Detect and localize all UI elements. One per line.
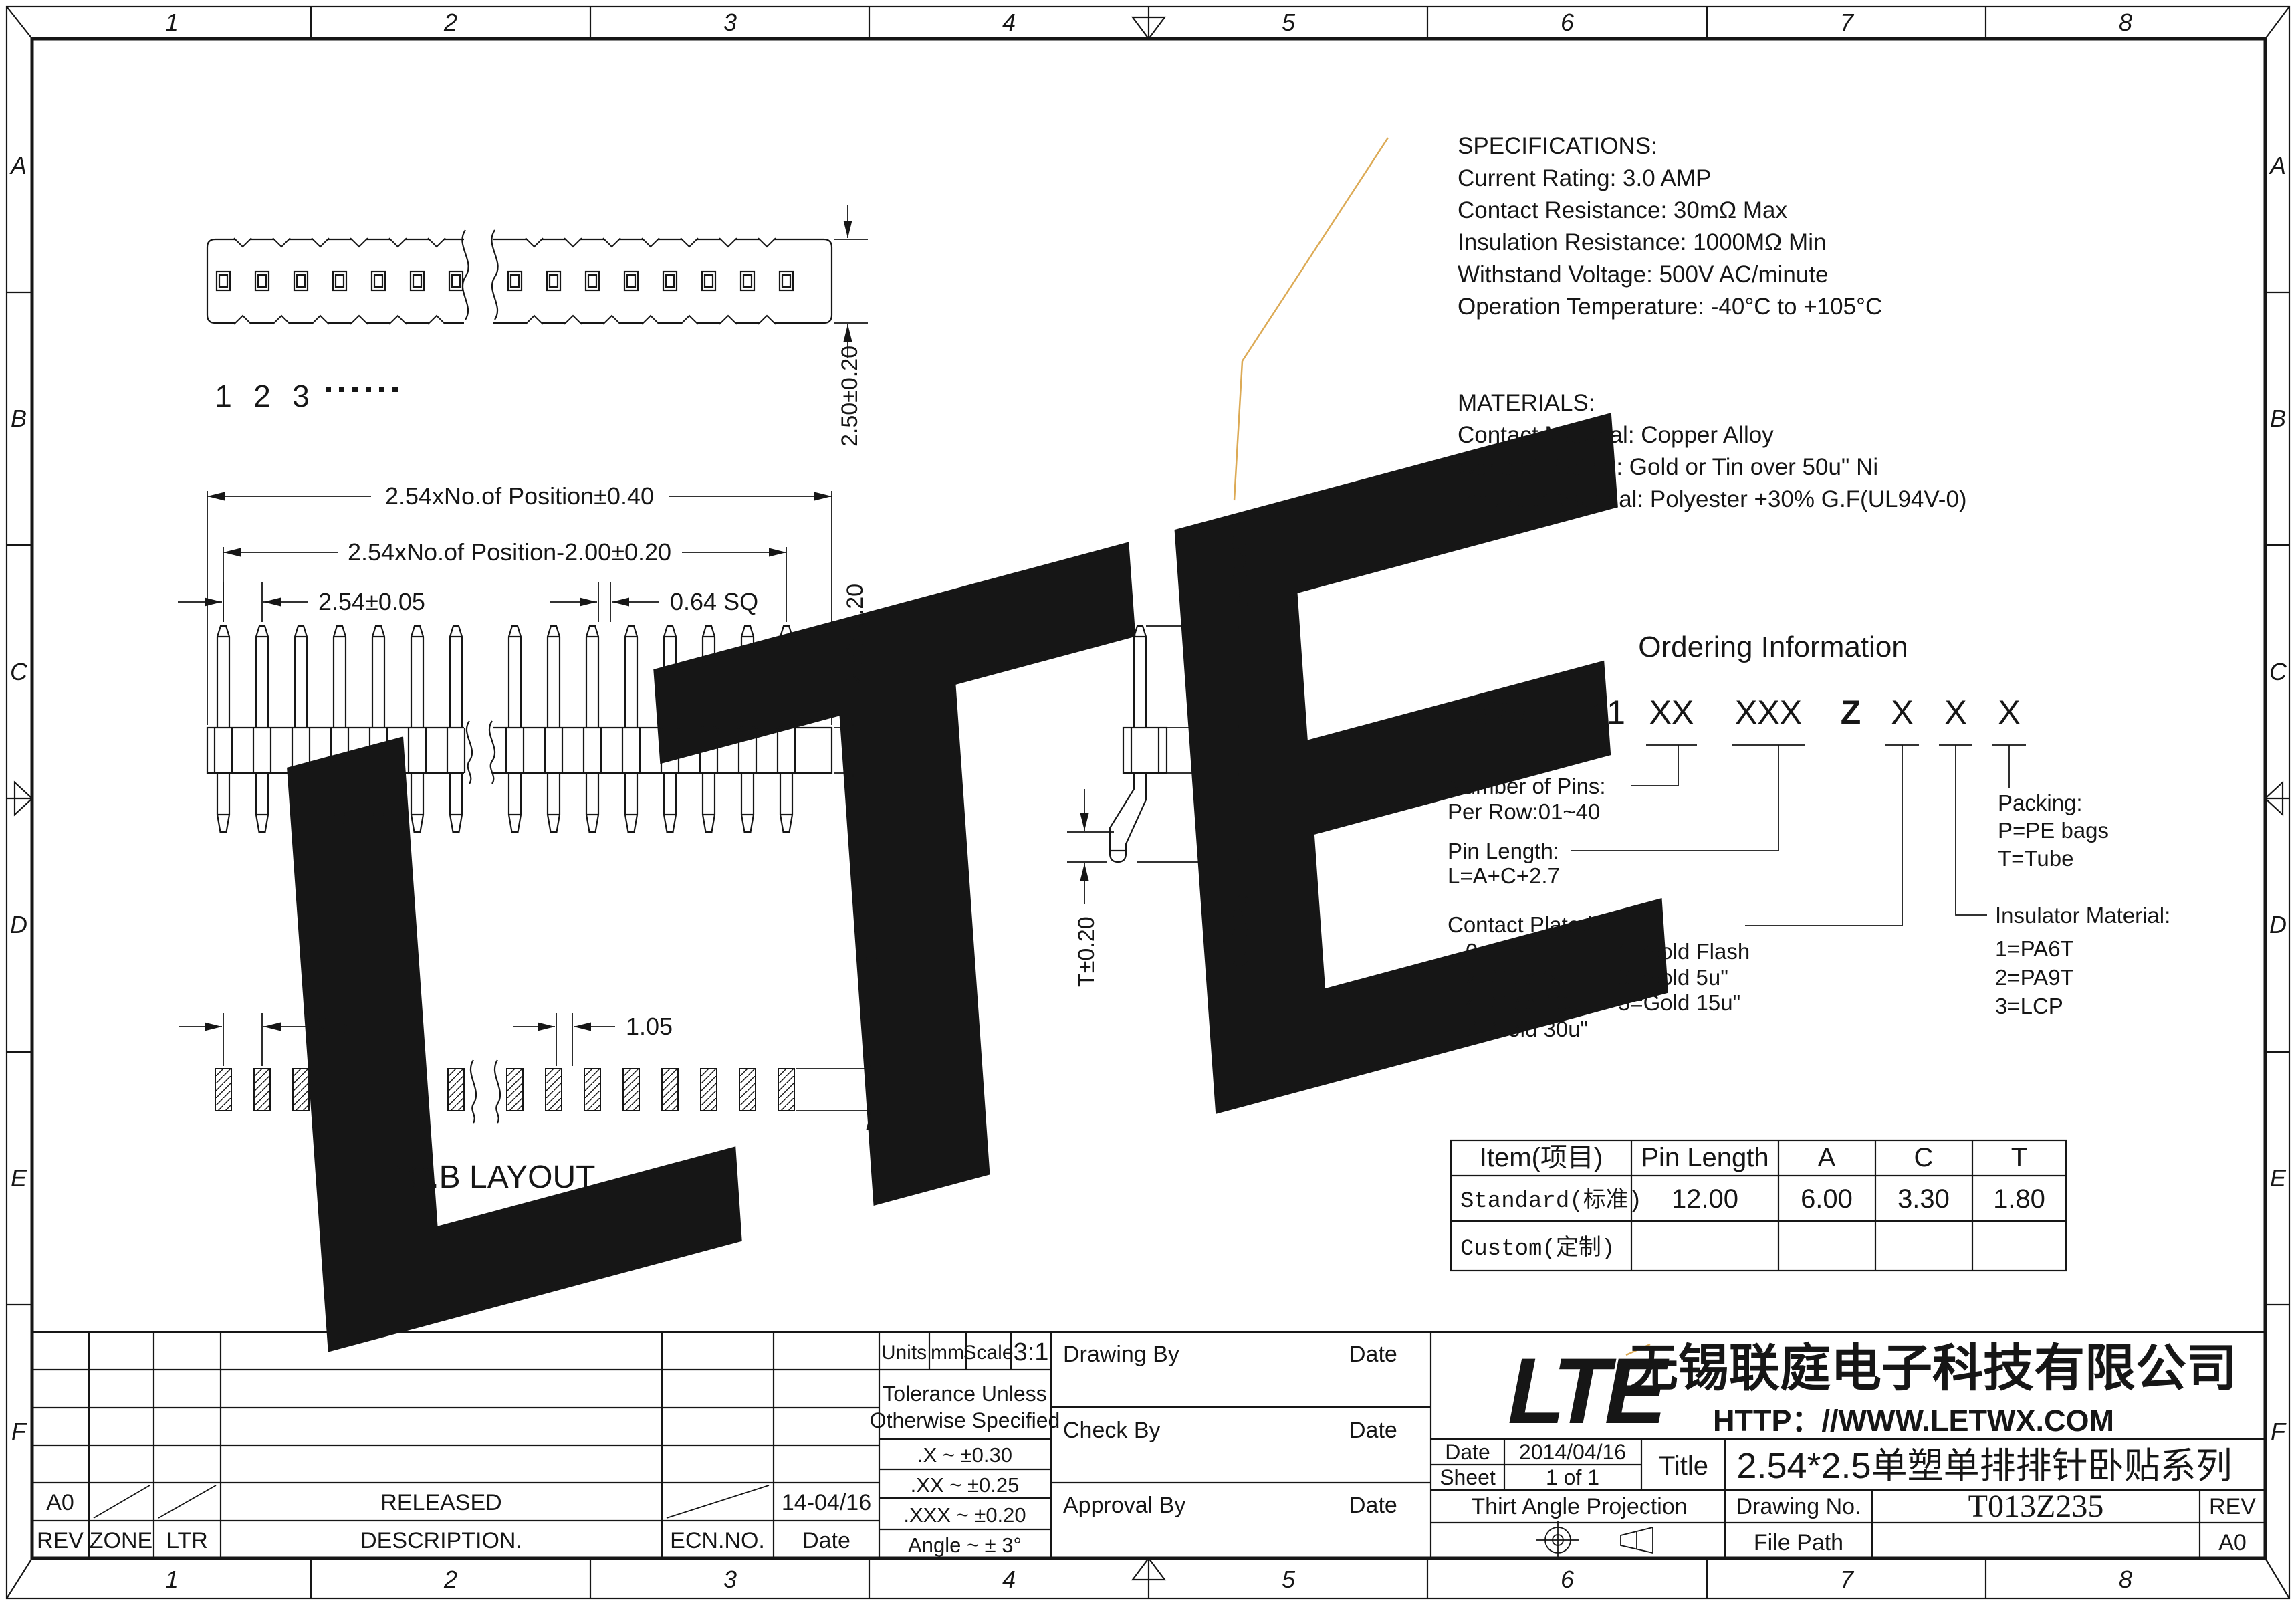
svg-text:B: B	[2270, 405, 2286, 432]
svg-text:E: E	[2270, 1164, 2287, 1192]
svg-text:LTR: LTR	[166, 1528, 208, 1554]
svg-text:XXX: XXX	[1735, 693, 1802, 731]
drawing-by-label: Drawing By	[1063, 1342, 1179, 1367]
svg-text:X: X	[1891, 693, 1913, 731]
svg-text:.XXX ~ ±0.20: .XXX ~ ±0.20	[903, 1503, 1026, 1527]
svg-text:D: D	[10, 911, 27, 938]
dim-a: A±0.20	[1228, 534, 1253, 606]
svg-text:8: 8	[2119, 9, 2132, 36]
dim-pcb-pad: 1.05	[626, 1012, 673, 1040]
svg-text:Insulation Resistance: 1000MΩ: Insulation Resistance: 1000MΩ Min	[1458, 229, 1826, 255]
svg-text:1=Gold Flash: 1=Gold Flash	[1618, 939, 1750, 964]
svg-text:1=PA6T: 1=PA6T	[1995, 936, 2074, 961]
dimension-table: Item(项目) Pin Length A C T Standard(标准) 1…	[1451, 1140, 2066, 1271]
svg-text:.X ~ ±0.30: .X ~ ±0.30	[917, 1443, 1012, 1467]
projection-symbol-icon	[1536, 1521, 1653, 1560]
svg-text:E: E	[11, 1164, 27, 1192]
svg-text:Contact Material: Copper Alloy: Contact Material: Copper Alloy	[1458, 422, 1774, 448]
dim-strip-height: 2.50±0.20	[837, 346, 863, 447]
svg-text:4: 4	[1002, 9, 1016, 36]
svg-text:DESCRIPTION.: DESCRIPTION.	[360, 1528, 522, 1554]
svg-text:C: C	[10, 658, 28, 685]
svg-text:Insulator Material: Polyester: Insulator Material: Polyester +30% G.F(U…	[1458, 486, 1967, 512]
company-url: HTTP：//WWW.LETWX.COM	[1713, 1404, 2114, 1438]
svg-text:5: 5	[1282, 1566, 1296, 1593]
svg-text:REV: REV	[37, 1528, 84, 1554]
svg-text:Angle ~ ± 3°: Angle ~ ± 3°	[908, 1533, 1022, 1557]
rev-date: 14-04/16	[782, 1490, 871, 1515]
svg-text:1: 1	[215, 379, 232, 413]
svg-text:0=Tin: 0=Tin	[1466, 939, 1520, 964]
pin-length-label: Pin Length:	[1448, 839, 1559, 863]
svg-text:7: 7	[1840, 1566, 1855, 1593]
svg-text:T=Tube: T=Tube	[1998, 846, 2073, 871]
table-row-standard-values: 12.00 6.00 3.30 1.80	[1672, 1184, 2045, 1214]
pcb-layout-label: P.C.B LAYOUT	[381, 1160, 596, 1195]
svg-text:Contact Plating: Gold or Tin o: Contact Plating: Gold or Tin over 50u" N…	[1458, 454, 1878, 480]
svg-text:Per Row:01~40: Per Row:01~40	[1448, 799, 1600, 824]
svg-text:-: -	[1539, 693, 1551, 731]
svg-text:3=Gold 5u": 3=Gold 5u"	[1618, 965, 1728, 990]
svg-text:B: B	[11, 405, 27, 432]
contact-plated-label: Contact Plated:	[1448, 912, 1599, 937]
svg-text:1.80: 1.80	[1993, 1184, 2045, 1214]
specifications-title: SPECIFICATIONS:	[1458, 133, 1657, 159]
dim-pcb-pitch: 2.54	[316, 1012, 362, 1040]
svg-text:F: F	[11, 1418, 27, 1445]
svg-text:.XX ~ ±0.25: .XX ~ ±0.25	[911, 1473, 1020, 1497]
svg-text:P=PE bags: P=PE bags	[1998, 818, 2109, 843]
svg-text:6=Gold 30u": 6=Gold 30u"	[1466, 1016, 1588, 1041]
svg-text:3=LCP: 3=LCP	[1995, 994, 2063, 1019]
svg-text:Date: Date	[1349, 1342, 1397, 1367]
table-row-custom-label: Custom(定制)	[1460, 1235, 1615, 1262]
table-row-standard-label: Standard(标准)	[1460, 1187, 1642, 1214]
svg-text:Pin Length: Pin Length	[1641, 1143, 1768, 1172]
sheet-label: Sheet	[1440, 1465, 1496, 1489]
svg-text:3: 3	[723, 1566, 737, 1593]
dim-t: T±0.20	[1074, 916, 1099, 987]
svg-text:X: X	[1944, 693, 1966, 731]
title-label: Title	[1659, 1451, 1708, 1481]
company-name: 无锡联庭电子科技有限公司	[1627, 1340, 2237, 1397]
svg-text:4: 4	[1002, 1566, 1016, 1593]
svg-text:L=A+C+2.7: L=A+C+2.7	[1448, 863, 1560, 888]
svg-text:2=PA9T: 2=PA9T	[1995, 965, 2074, 990]
sheet-value: 1 of 1	[1546, 1465, 1599, 1489]
date-label: Date	[1445, 1440, 1490, 1464]
scale-label: Scale	[963, 1342, 1013, 1364]
svg-text:12.00: 12.00	[1672, 1184, 1738, 1214]
svg-text:11: 11	[1591, 693, 1625, 731]
drawing-number: T013Z235	[1968, 1489, 2104, 1524]
company-block: LTE 无锡联庭电子科技有限公司 HTTP：//WWW.LETWX.COM Da…	[1431, 1338, 2265, 1560]
svg-text:Date: Date	[1349, 1418, 1397, 1443]
table-header: Item(项目)	[1480, 1143, 1603, 1172]
materials-title: MATERIALS:	[1458, 390, 1595, 416]
part-number: 1325 - 11 XX XXX Z X X X	[1454, 693, 2020, 731]
approval-by-label: Approval By	[1063, 1493, 1185, 1518]
pins-label: Number of Pins:	[1448, 774, 1606, 798]
drawing-no-label: Drawing No.	[1736, 1494, 1861, 1519]
svg-text:1325: 1325	[1454, 693, 1528, 731]
dim-inner: 2.54xNo.of Position-2.00±0.20	[348, 538, 671, 566]
svg-text:Contact Resistance: 30mΩ Max: Contact Resistance: 30mΩ Max	[1458, 197, 1788, 223]
svg-text:F: F	[2271, 1418, 2287, 1445]
svg-text:4=Gold 10u": 4=Gold 10u"	[1466, 990, 1588, 1015]
svg-text:Date: Date	[802, 1528, 850, 1554]
svg-text:A: A	[9, 152, 27, 179]
packing-label: Packing:	[1998, 790, 2083, 815]
svg-text:2: 2	[253, 379, 271, 413]
svg-text:2: 2	[443, 1566, 457, 1593]
dim-pcb-t: T+1.0	[860, 955, 885, 1014]
svg-text:5=Gold 15u": 5=Gold 15u"	[1618, 990, 1740, 1015]
svg-text:Date: Date	[1349, 1493, 1397, 1518]
svg-text:5: 5	[1282, 9, 1296, 36]
insulator-label: Insulator Material:	[1995, 903, 2170, 928]
zone-col: 1	[165, 9, 179, 36]
svg-text:2=Gold 3u": 2=Gold 3u"	[1466, 965, 1576, 990]
ordering-title: Ordering Information	[1638, 631, 1908, 663]
engineering-drawing-sheet: LTE 1 2 3 4 5 6 7 8 1 2 3 4 5 6 7 8 A B …	[0, 0, 2296, 1605]
svg-text:T: T	[2011, 1143, 2027, 1172]
rev-value: A0	[46, 1490, 74, 1515]
dim-pin-sq: 0.64 SQ	[670, 588, 758, 615]
svg-text:6.00: 6.00	[1801, 1184, 1853, 1214]
rev-col-value: A0	[2218, 1530, 2247, 1556]
drawing-title: 2.54*2.5单塑单排排针卧贴系列	[1736, 1446, 2232, 1486]
svg-text:2: 2	[443, 9, 457, 36]
svg-text:Withstand Voltage: 500V AC/min: Withstand Voltage: 500V AC/minute	[1458, 261, 1829, 288]
svg-text:C: C	[1914, 1143, 1934, 1172]
svg-text:D: D	[2269, 911, 2287, 938]
svg-text:Current Rating: 3.0 AMP: Current Rating: 3.0 AMP	[1458, 165, 1711, 191]
svg-text:3: 3	[723, 9, 737, 36]
svg-text:6: 6	[1561, 9, 1575, 36]
ellipsis-dots	[326, 387, 398, 392]
svg-text:Tolerance Unless: Tolerance Unless	[883, 1382, 1046, 1406]
units-value: mm	[931, 1342, 964, 1364]
check-by-label: Check By	[1063, 1418, 1161, 1443]
svg-text:3.30: 3.30	[1898, 1184, 1950, 1214]
rev-description: RELEASED	[380, 1490, 501, 1515]
dim-pitch: 2.54±0.05	[318, 588, 425, 615]
rev-col-label: REV	[2209, 1494, 2256, 1519]
svg-text:A: A	[2269, 152, 2286, 179]
svg-text:X: X	[1998, 693, 2020, 731]
svg-text:Operation Temperature: -40°C t: Operation Temperature: -40°C to +105°C	[1458, 294, 1882, 320]
dim-c: C±0.25	[1228, 894, 1253, 967]
svg-text:ZONE: ZONE	[90, 1528, 152, 1554]
svg-text:XX: XX	[1649, 693, 1694, 731]
date-value: 2014/04/16	[1519, 1440, 1626, 1464]
dim-overall: 2.54xNo.of Position±0.40	[385, 482, 654, 510]
file-path-label: File Path	[1754, 1530, 1843, 1556]
scale-value: 3:1	[1014, 1338, 1049, 1366]
svg-text:ECN.NO.: ECN.NO.	[670, 1528, 765, 1554]
svg-text:1: 1	[165, 1566, 179, 1593]
svg-text:Z: Z	[1841, 693, 1861, 731]
lte-watermark: LTE	[118, 138, 1815, 1527]
svg-text:7: 7	[1840, 9, 1855, 36]
projection-label: Thirt Angle Projection	[1471, 1494, 1687, 1519]
units-label: Units	[881, 1342, 927, 1364]
svg-text:8: 8	[2119, 1566, 2132, 1593]
dim-body-height: 2.50±0.20	[842, 584, 868, 685]
top-view: 1 2 3 2.50±0.20	[207, 205, 868, 447]
signature-block: Drawing By Date Check By Date Approval B…	[1051, 1332, 1431, 1558]
pin-numbers: 1 2 3	[215, 379, 310, 413]
svg-text:C: C	[2269, 658, 2287, 685]
svg-text:3: 3	[292, 379, 310, 413]
svg-text:6: 6	[1561, 1566, 1575, 1593]
svg-text:A: A	[1818, 1143, 1836, 1172]
svg-text:Otherwise Specified: Otherwise Specified	[870, 1408, 1060, 1432]
